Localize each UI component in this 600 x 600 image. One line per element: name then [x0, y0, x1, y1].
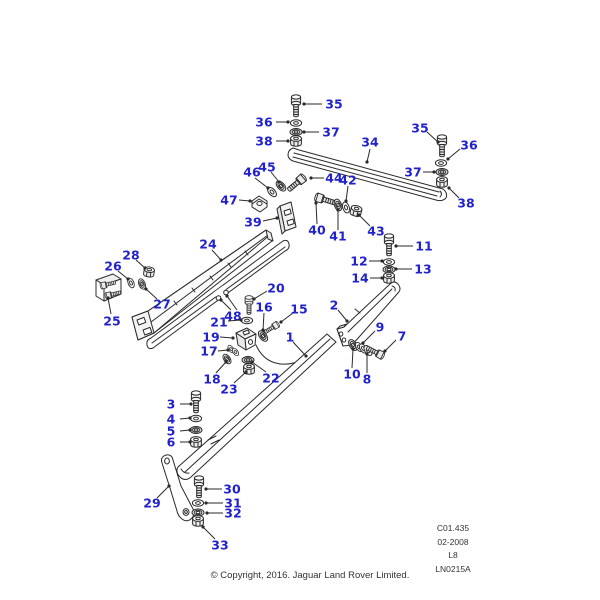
- leader-dot-48: [225, 294, 228, 297]
- callout-8: 8: [363, 372, 372, 387]
- leader-dot-35: [436, 140, 439, 143]
- leader-dot-44: [309, 176, 312, 179]
- leader-dot-40: [314, 201, 317, 204]
- leader-dot-29: [167, 484, 170, 487]
- leader-dot-32: [205, 511, 208, 514]
- part-bolt-44-group: [266, 173, 308, 198]
- callout-38: 38: [457, 196, 474, 211]
- callout-22: 22: [262, 371, 279, 386]
- callout-19: 19: [202, 330, 219, 345]
- leader-dot-42: [344, 199, 347, 202]
- leader-line-16: [263, 313, 264, 330]
- part-bolt-stack-left: [290, 95, 302, 146]
- callout-1: 1: [286, 330, 295, 345]
- leader-dot-43: [357, 213, 360, 216]
- leader-line-25: [108, 298, 111, 314]
- leader-dot-18: [224, 360, 227, 363]
- callout-45: 45: [258, 160, 275, 175]
- leader-dot-5: [188, 428, 191, 431]
- parts-diagram-svg: 3536373834353637384645444247394041431112…: [0, 0, 600, 600]
- callout-29: 29: [143, 496, 160, 511]
- callout-37: 37: [322, 125, 339, 140]
- callout-7: 7: [398, 329, 407, 344]
- part-grommet-48b: [224, 290, 229, 295]
- leader-dot-13: [394, 267, 397, 270]
- leader-dot-38: [447, 186, 450, 189]
- leader-dot-39: [275, 216, 278, 219]
- leader-dot-34: [365, 160, 368, 163]
- callout-16: 16: [255, 300, 273, 315]
- callout-35: 35: [325, 97, 342, 112]
- callout-37: 37: [404, 165, 421, 180]
- part-rail-34: [288, 148, 447, 201]
- leader-dot-2: [345, 319, 348, 322]
- callout-28: 28: [122, 248, 139, 263]
- part-clip-47: [252, 196, 267, 212]
- leader-dot-47: [248, 199, 251, 202]
- leader-dot-4: [188, 416, 191, 419]
- part-bolt-stack-30-33: [192, 476, 204, 526]
- callout-15: 15: [290, 302, 307, 317]
- callout-32: 32: [224, 506, 241, 521]
- leader-dot-15: [279, 320, 282, 323]
- copyright-text: © Copyright, 2016. Jaguar Land Rover Lim…: [0, 570, 600, 581]
- leader-dot-16: [261, 328, 264, 331]
- leader-dot-1: [304, 354, 307, 357]
- callout-13: 13: [414, 262, 431, 277]
- leader-line-1: [293, 342, 306, 356]
- callout-26: 26: [104, 259, 122, 274]
- leader-line-36: [448, 149, 460, 159]
- callout-24: 24: [199, 237, 217, 252]
- leader-dot-31: [204, 501, 207, 504]
- leader-line-7: [385, 340, 396, 351]
- callout-14: 14: [351, 271, 369, 286]
- leader-dot-26: [126, 277, 129, 280]
- callout-36: 36: [460, 138, 478, 153]
- callout-20: 20: [267, 281, 285, 296]
- leader-dot-41: [336, 208, 339, 211]
- callout-9: 9: [376, 320, 385, 335]
- leader-dot-23: [244, 370, 247, 373]
- callout-41: 41: [329, 229, 346, 244]
- callout-27: 27: [153, 297, 170, 312]
- leader-dot-9: [361, 341, 364, 344]
- leader-dot-3: [189, 402, 192, 405]
- leader-dot-27: [144, 287, 147, 290]
- leader-line-19: [220, 337, 233, 338]
- callout-43: 43: [367, 224, 384, 239]
- callout-6: 6: [167, 435, 176, 450]
- callout-23: 23: [220, 382, 237, 397]
- leader-dot-8: [365, 352, 368, 355]
- callout-21: 21: [210, 315, 227, 330]
- callout-25: 25: [103, 314, 120, 329]
- part-bracket-39: [277, 202, 296, 234]
- leader-dot-36: [286, 120, 289, 123]
- callout-38: 38: [255, 134, 272, 149]
- callout-42: 42: [339, 173, 356, 188]
- drawing-reference-block: C01.435 02-2008 L8 LN0215A: [418, 522, 488, 576]
- leader-dot-19: [231, 336, 234, 339]
- leader-dot-30: [204, 487, 207, 490]
- part-bracket-19-group: [221, 328, 256, 374]
- callout-33: 33: [211, 538, 228, 553]
- callout-12: 12: [350, 254, 367, 269]
- leader-dot-24: [219, 258, 222, 261]
- callout-47: 47: [220, 193, 237, 208]
- leader-line-20: [254, 291, 267, 299]
- leader-dot-10: [351, 347, 354, 350]
- leader-line-9: [363, 331, 375, 343]
- leader-dot-6: [188, 440, 191, 443]
- callout-2: 2: [330, 298, 339, 313]
- part-strip-2: [337, 282, 400, 346]
- leader-dot-21: [239, 318, 242, 321]
- callout-36: 36: [255, 115, 273, 130]
- leader-line-10: [352, 349, 353, 368]
- leader-dot-25: [106, 296, 109, 299]
- part-bolt-stack-3-6: [190, 391, 202, 447]
- diagram-page: 3536373834353637384645444247394041431112…: [0, 0, 600, 600]
- leader-dot-28: [143, 266, 146, 269]
- leader-dot-22: [250, 360, 253, 363]
- callout-17: 17: [200, 344, 217, 359]
- callout-39: 39: [244, 215, 261, 230]
- callout-18: 18: [203, 372, 220, 387]
- leader-line-24: [212, 250, 221, 260]
- callout-34: 34: [361, 135, 379, 150]
- leader-dot-17: [226, 348, 229, 351]
- ref-sheet: L8: [418, 549, 488, 563]
- leader-dot-45: [277, 180, 280, 183]
- ref-drawing-number: C01.435: [418, 522, 488, 536]
- leader-dot-14: [380, 276, 383, 279]
- callout-3: 3: [167, 397, 176, 412]
- callout-40: 40: [308, 223, 326, 238]
- callout-30: 30: [223, 482, 241, 497]
- leader-dot-35: [302, 102, 305, 105]
- callout-35: 35: [411, 121, 428, 136]
- leader-dot-46: [266, 186, 269, 189]
- leader-dot-37: [302, 130, 305, 133]
- leader-dot-37: [432, 170, 435, 173]
- leader-line-40: [316, 203, 317, 224]
- callout-10: 10: [343, 367, 361, 382]
- leader-dot-11: [394, 244, 397, 247]
- leader-dot-38: [286, 139, 289, 142]
- leader-line-47: [239, 200, 250, 201]
- leader-dot-48: [219, 298, 222, 301]
- leader-line-2: [338, 310, 347, 321]
- ref-date: 02-2008: [418, 536, 488, 550]
- leader-line-46: [255, 178, 268, 188]
- callout-11: 11: [415, 239, 432, 254]
- leader-dot-12: [380, 259, 383, 262]
- leader-dot-33: [201, 525, 204, 528]
- leader-line-34: [367, 149, 370, 162]
- leader-dot-36: [446, 157, 449, 160]
- leader-dot-7: [383, 349, 386, 352]
- part-bolt-stack-11-14: [383, 234, 395, 283]
- leader-line-42: [346, 186, 348, 201]
- leader-line-39: [263, 218, 277, 221]
